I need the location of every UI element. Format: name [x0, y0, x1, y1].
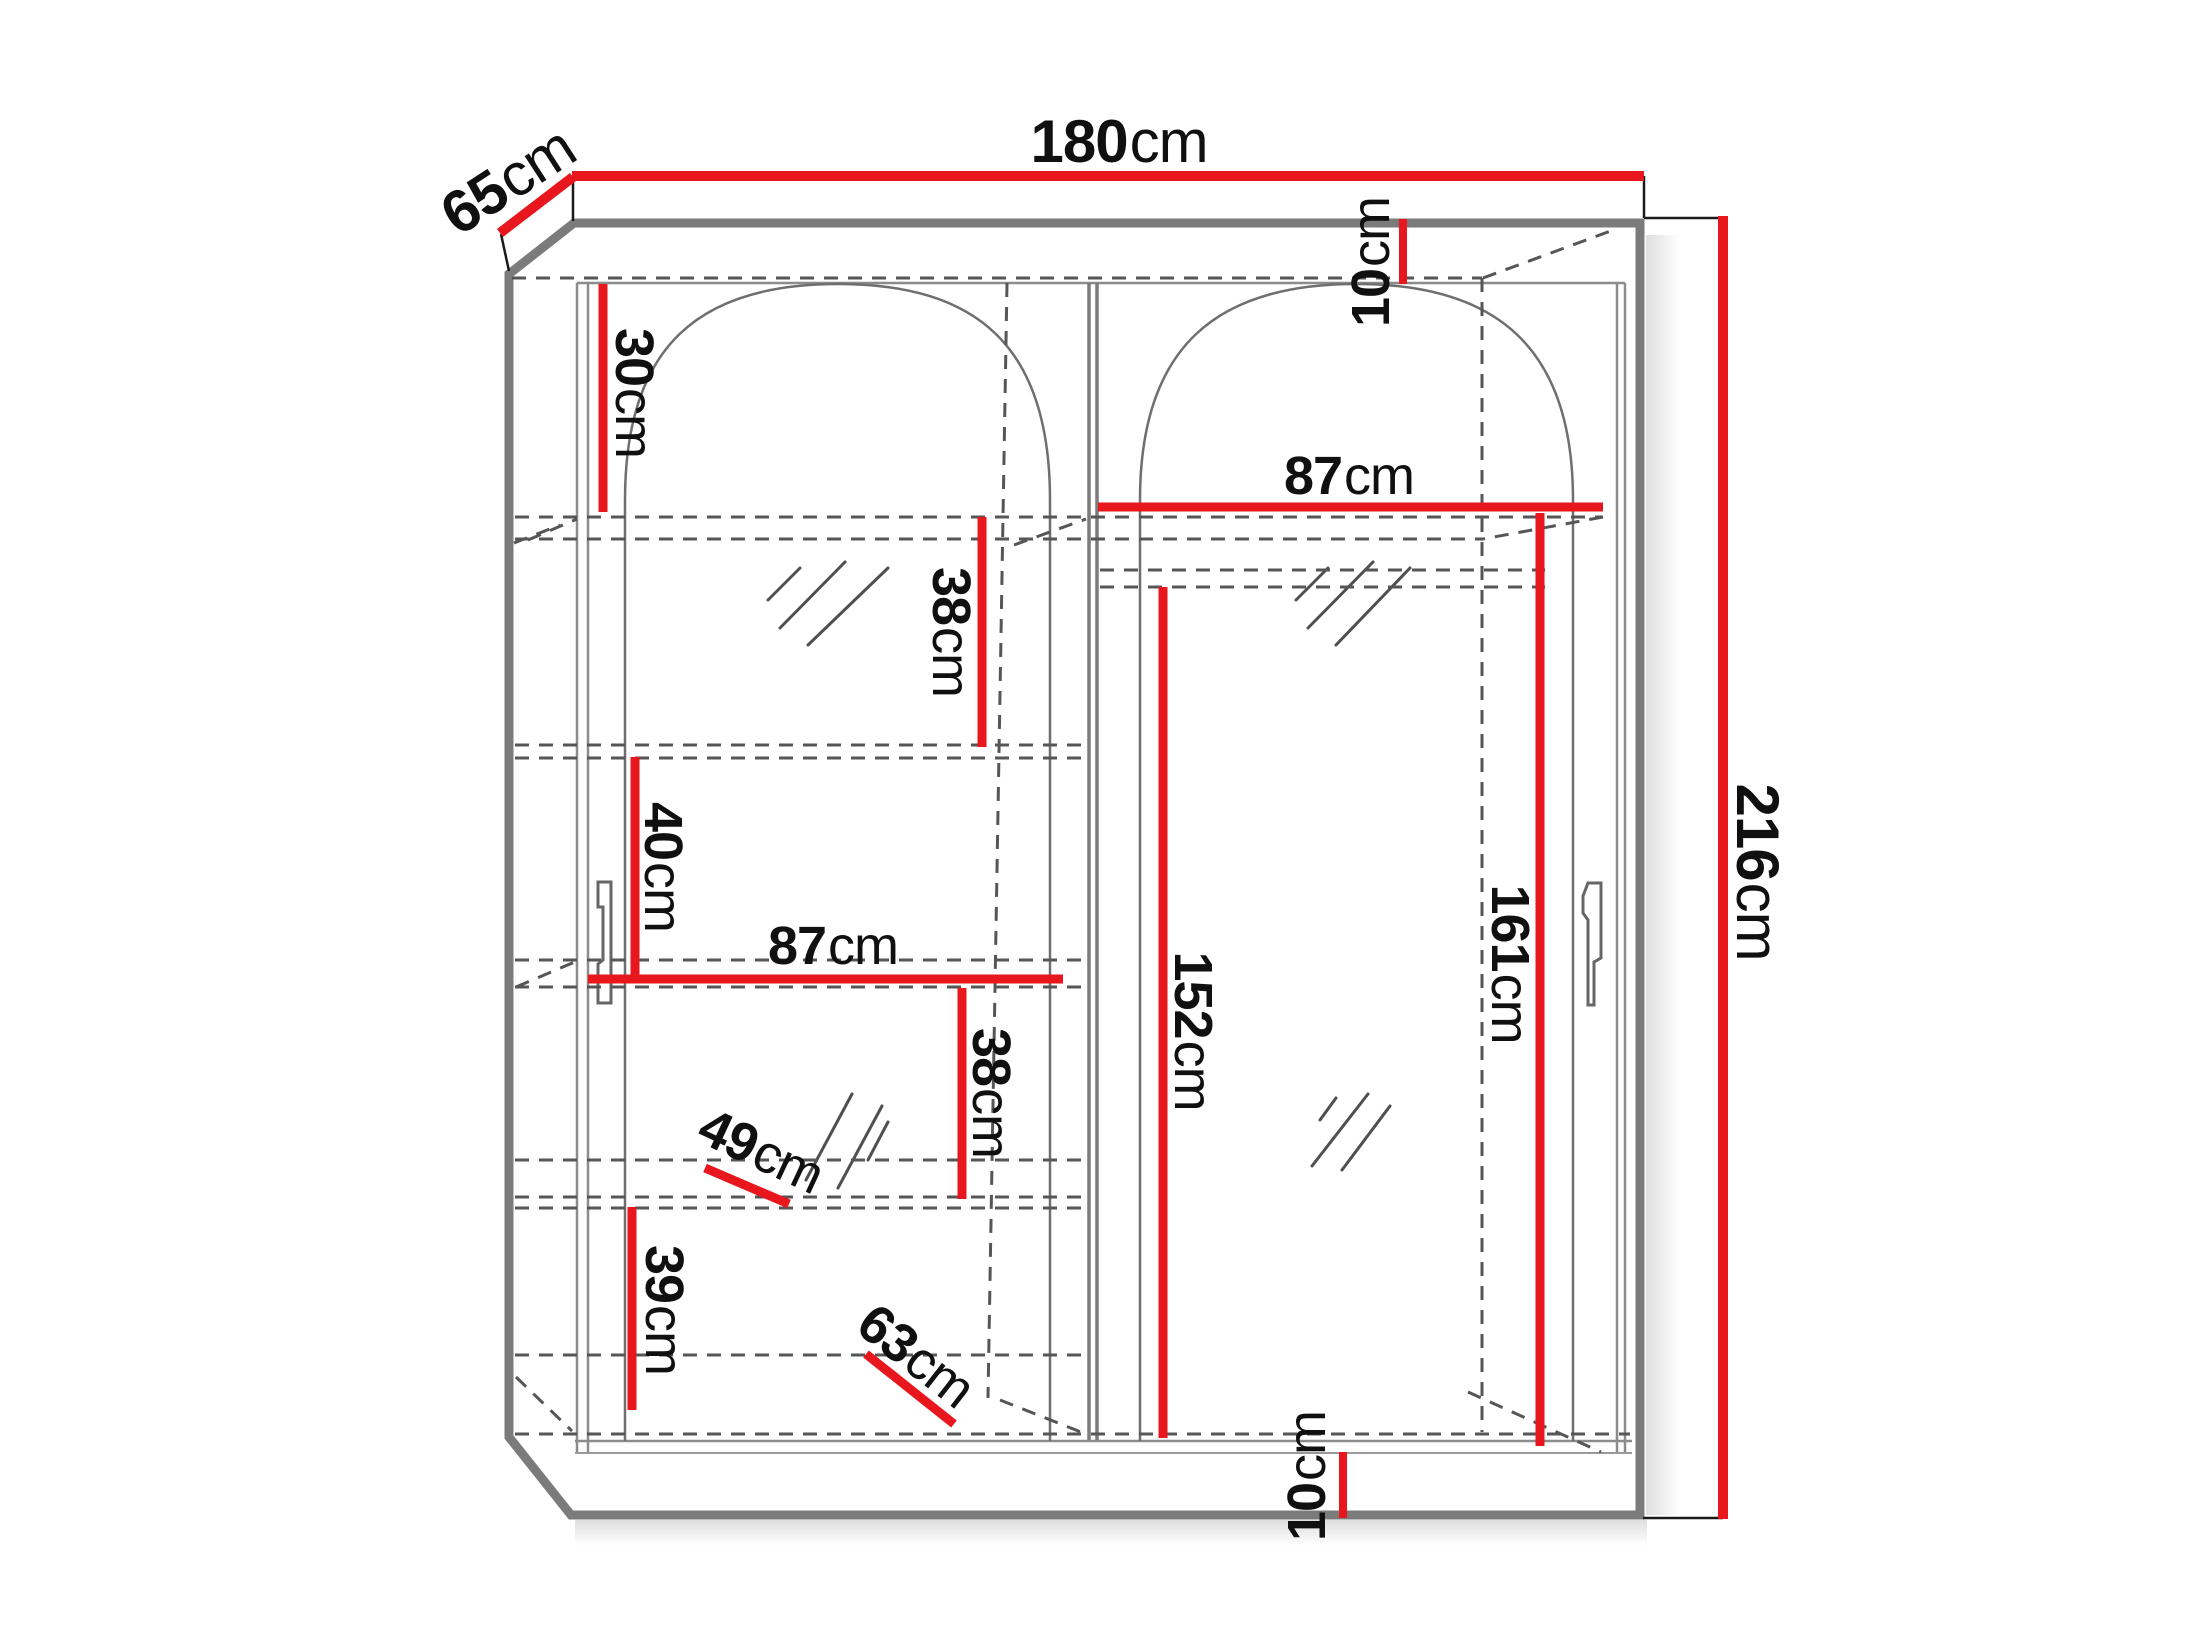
arched-door-frames: [625, 284, 1573, 1441]
right-door-handle: [1583, 883, 1601, 1005]
dim-label-right-hang-height: 161cm: [1483, 884, 1537, 1043]
door-handles: [598, 882, 1601, 1005]
dim-label-center-hang-height: 152cm: [1166, 951, 1220, 1110]
dim-label-width-top: 180cm: [1030, 112, 1207, 172]
dim-label-plinth-height: 10cm: [1280, 1411, 1334, 1541]
dim-label-top-offset: 10cm: [1344, 197, 1398, 327]
dim-label-shelf-gap-upper: 38cm: [924, 567, 978, 697]
dim-label-left-inner-width: 87cm: [768, 919, 898, 973]
dim-label-height: 216cm: [1727, 783, 1787, 960]
dim-label-right-inner-width: 87cm: [1284, 449, 1414, 503]
center-divider: [1089, 283, 1097, 1440]
wardrobe-line-drawing: [0, 0, 2200, 1650]
cabinet-interior-lines: [575, 283, 1632, 1453]
dim-label-lower-left-gap: 39cm: [637, 1245, 691, 1375]
dim-label-left-mid-gap: 40cm: [636, 802, 690, 932]
shadow-right: [1646, 235, 1680, 1515]
diagram-page: 180cm 65cm 216cm 10cm 30cm 87cm 38cm 40c…: [0, 0, 2200, 1650]
left-door-handle: [598, 882, 611, 1003]
shadow-bottom: [575, 1520, 1647, 1546]
dim-label-upper-left-gap: 30cm: [607, 328, 661, 458]
dim-label-shelf-gap-lower: 38cm: [964, 1028, 1018, 1158]
